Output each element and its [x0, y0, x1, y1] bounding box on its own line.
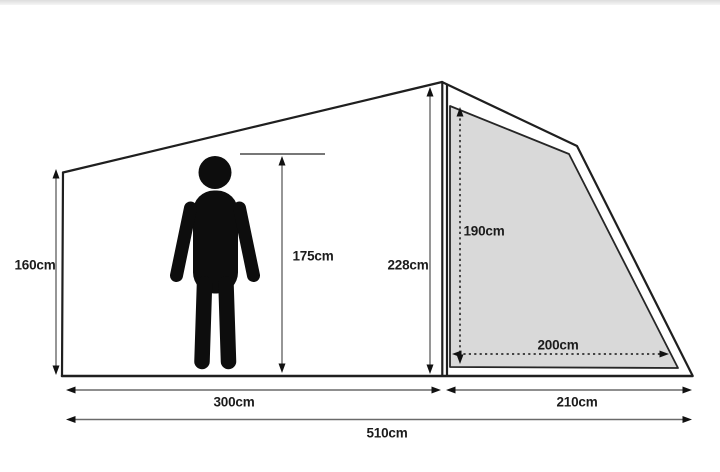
label-porch-door-height: 190cm — [463, 224, 504, 239]
person-legs — [202, 284, 229, 362]
label-porch-section-length: 210cm — [556, 395, 597, 410]
person-head — [199, 156, 232, 189]
tent-left-wall — [62, 173, 63, 377]
label-peak-height: 228cm — [387, 258, 428, 273]
tent-dimension-diagram: 160cm 175cm 228cm 190cm 200cm 300cm 210c… — [0, 0, 720, 472]
person-silhouette — [177, 156, 254, 362]
tent-roof-left — [63, 82, 442, 173]
dimension-arrow-300 — [66, 387, 441, 394]
label-left-wall-height: 160cm — [14, 258, 55, 273]
tent-diagram-canvas — [0, 0, 720, 472]
label-person-height: 175cm — [292, 249, 333, 264]
dimension-arrow-228 — [427, 87, 434, 374]
dimension-arrow-210 — [446, 387, 692, 394]
label-main-section-length: 300cm — [213, 395, 254, 410]
dimension-arrow-510 — [66, 416, 692, 423]
label-total-length: 510cm — [366, 426, 407, 441]
label-porch-door-width: 200cm — [537, 338, 578, 353]
